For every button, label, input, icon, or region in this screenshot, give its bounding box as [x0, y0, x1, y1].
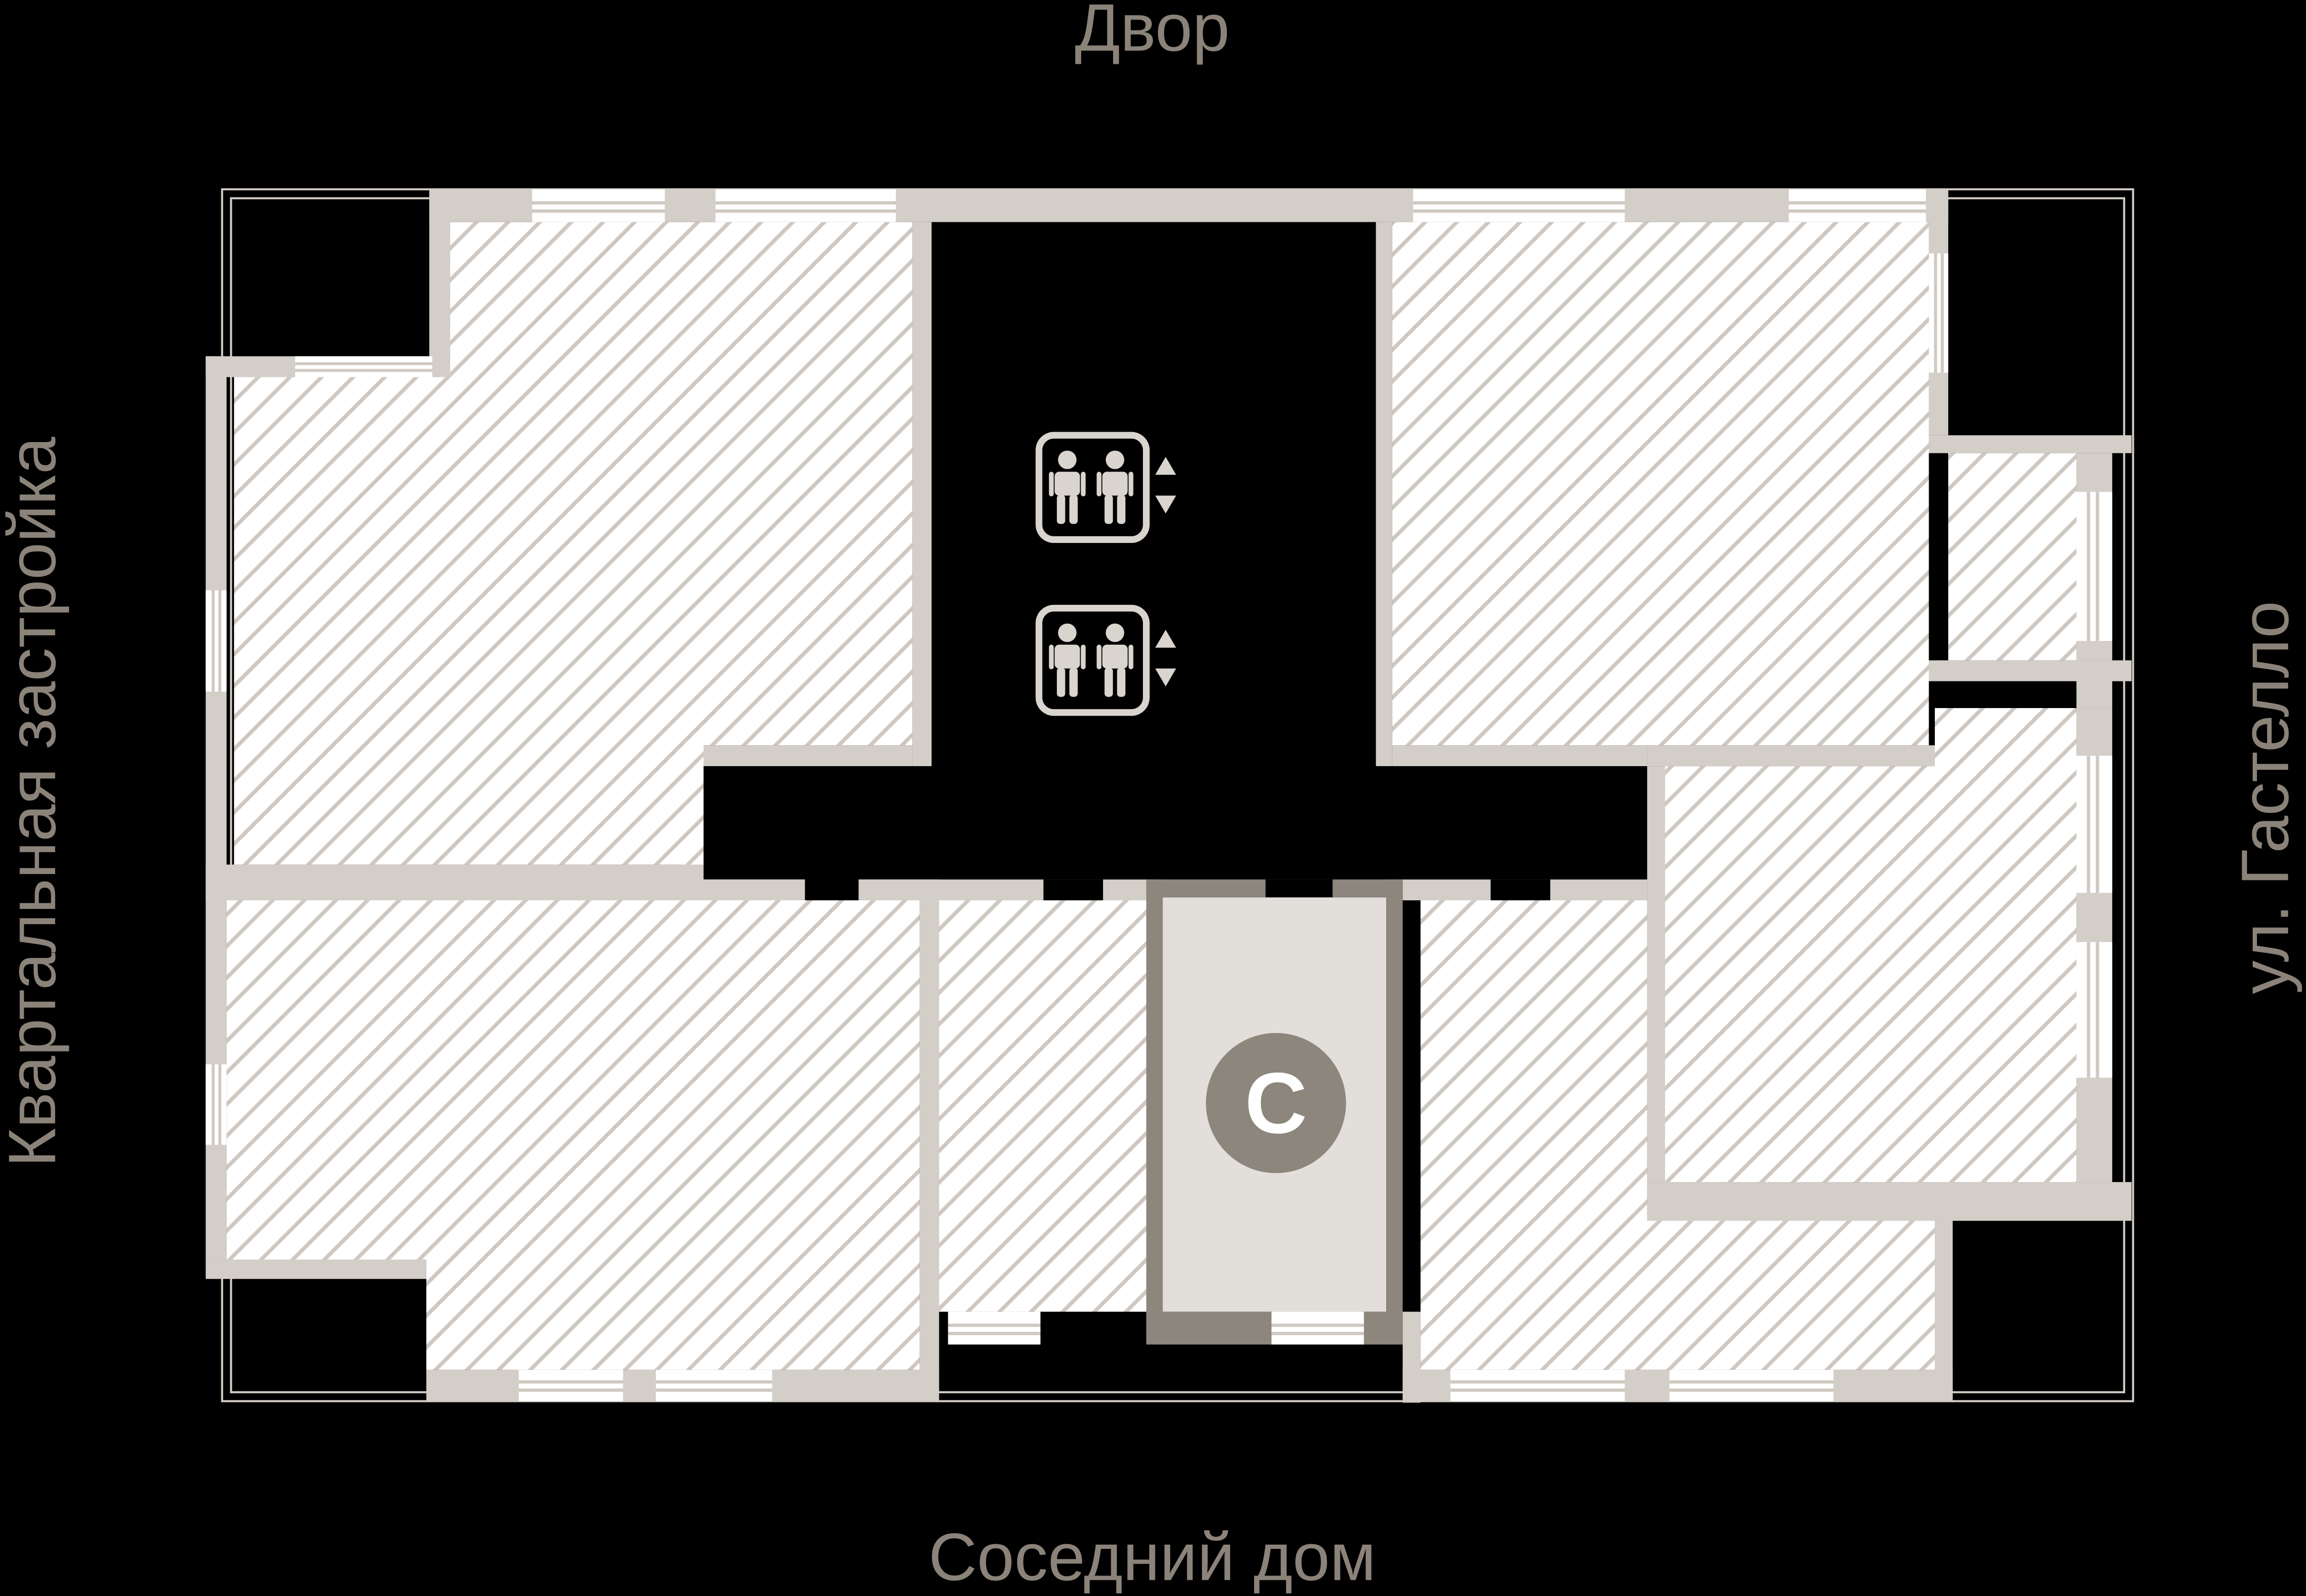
label-courtyard: Двор — [1075, 0, 1230, 66]
vestibule-entrance-door — [1271, 1312, 1364, 1345]
window — [2077, 492, 2112, 641]
window — [2077, 756, 2112, 893]
floor-plan: С — [0, 0, 2306, 1595]
label-neighboring-house: Соседний дом — [928, 1520, 1376, 1595]
window — [206, 590, 227, 691]
label-gastello-street: ул. Гастелло — [2228, 601, 2303, 994]
label-block-development: Квартальная застройка — [0, 437, 70, 1167]
window — [948, 1312, 1040, 1345]
apartment-area-top-right[interactable] — [1392, 222, 1929, 746]
vestibule: С — [1146, 879, 1403, 1344]
vestibule-corridor-opening — [1265, 879, 1332, 897]
window — [1450, 1370, 1625, 1401]
window — [1669, 1370, 1833, 1401]
window — [1413, 189, 1625, 222]
north-indicator: С — [1206, 1033, 1346, 1173]
apartment-area-right[interactable] — [1665, 708, 2077, 1182]
apartment-area-bay[interactable] — [1948, 453, 2076, 660]
window — [295, 356, 432, 377]
window — [532, 189, 665, 222]
window — [1929, 254, 1948, 373]
window — [656, 1370, 772, 1401]
apartment-area-bottom-left[interactable] — [227, 900, 920, 1370]
window — [519, 1370, 623, 1401]
floor-plan-view: С Двор Соседний дом Квартальная застройк… — [0, 0, 2306, 1595]
window — [2077, 942, 2112, 1078]
window — [716, 189, 896, 222]
window — [1789, 189, 1926, 222]
north-letter: С — [1245, 1055, 1307, 1152]
apartment-area-bottom-middle[interactable] — [939, 900, 1149, 1312]
window — [206, 1064, 227, 1145]
